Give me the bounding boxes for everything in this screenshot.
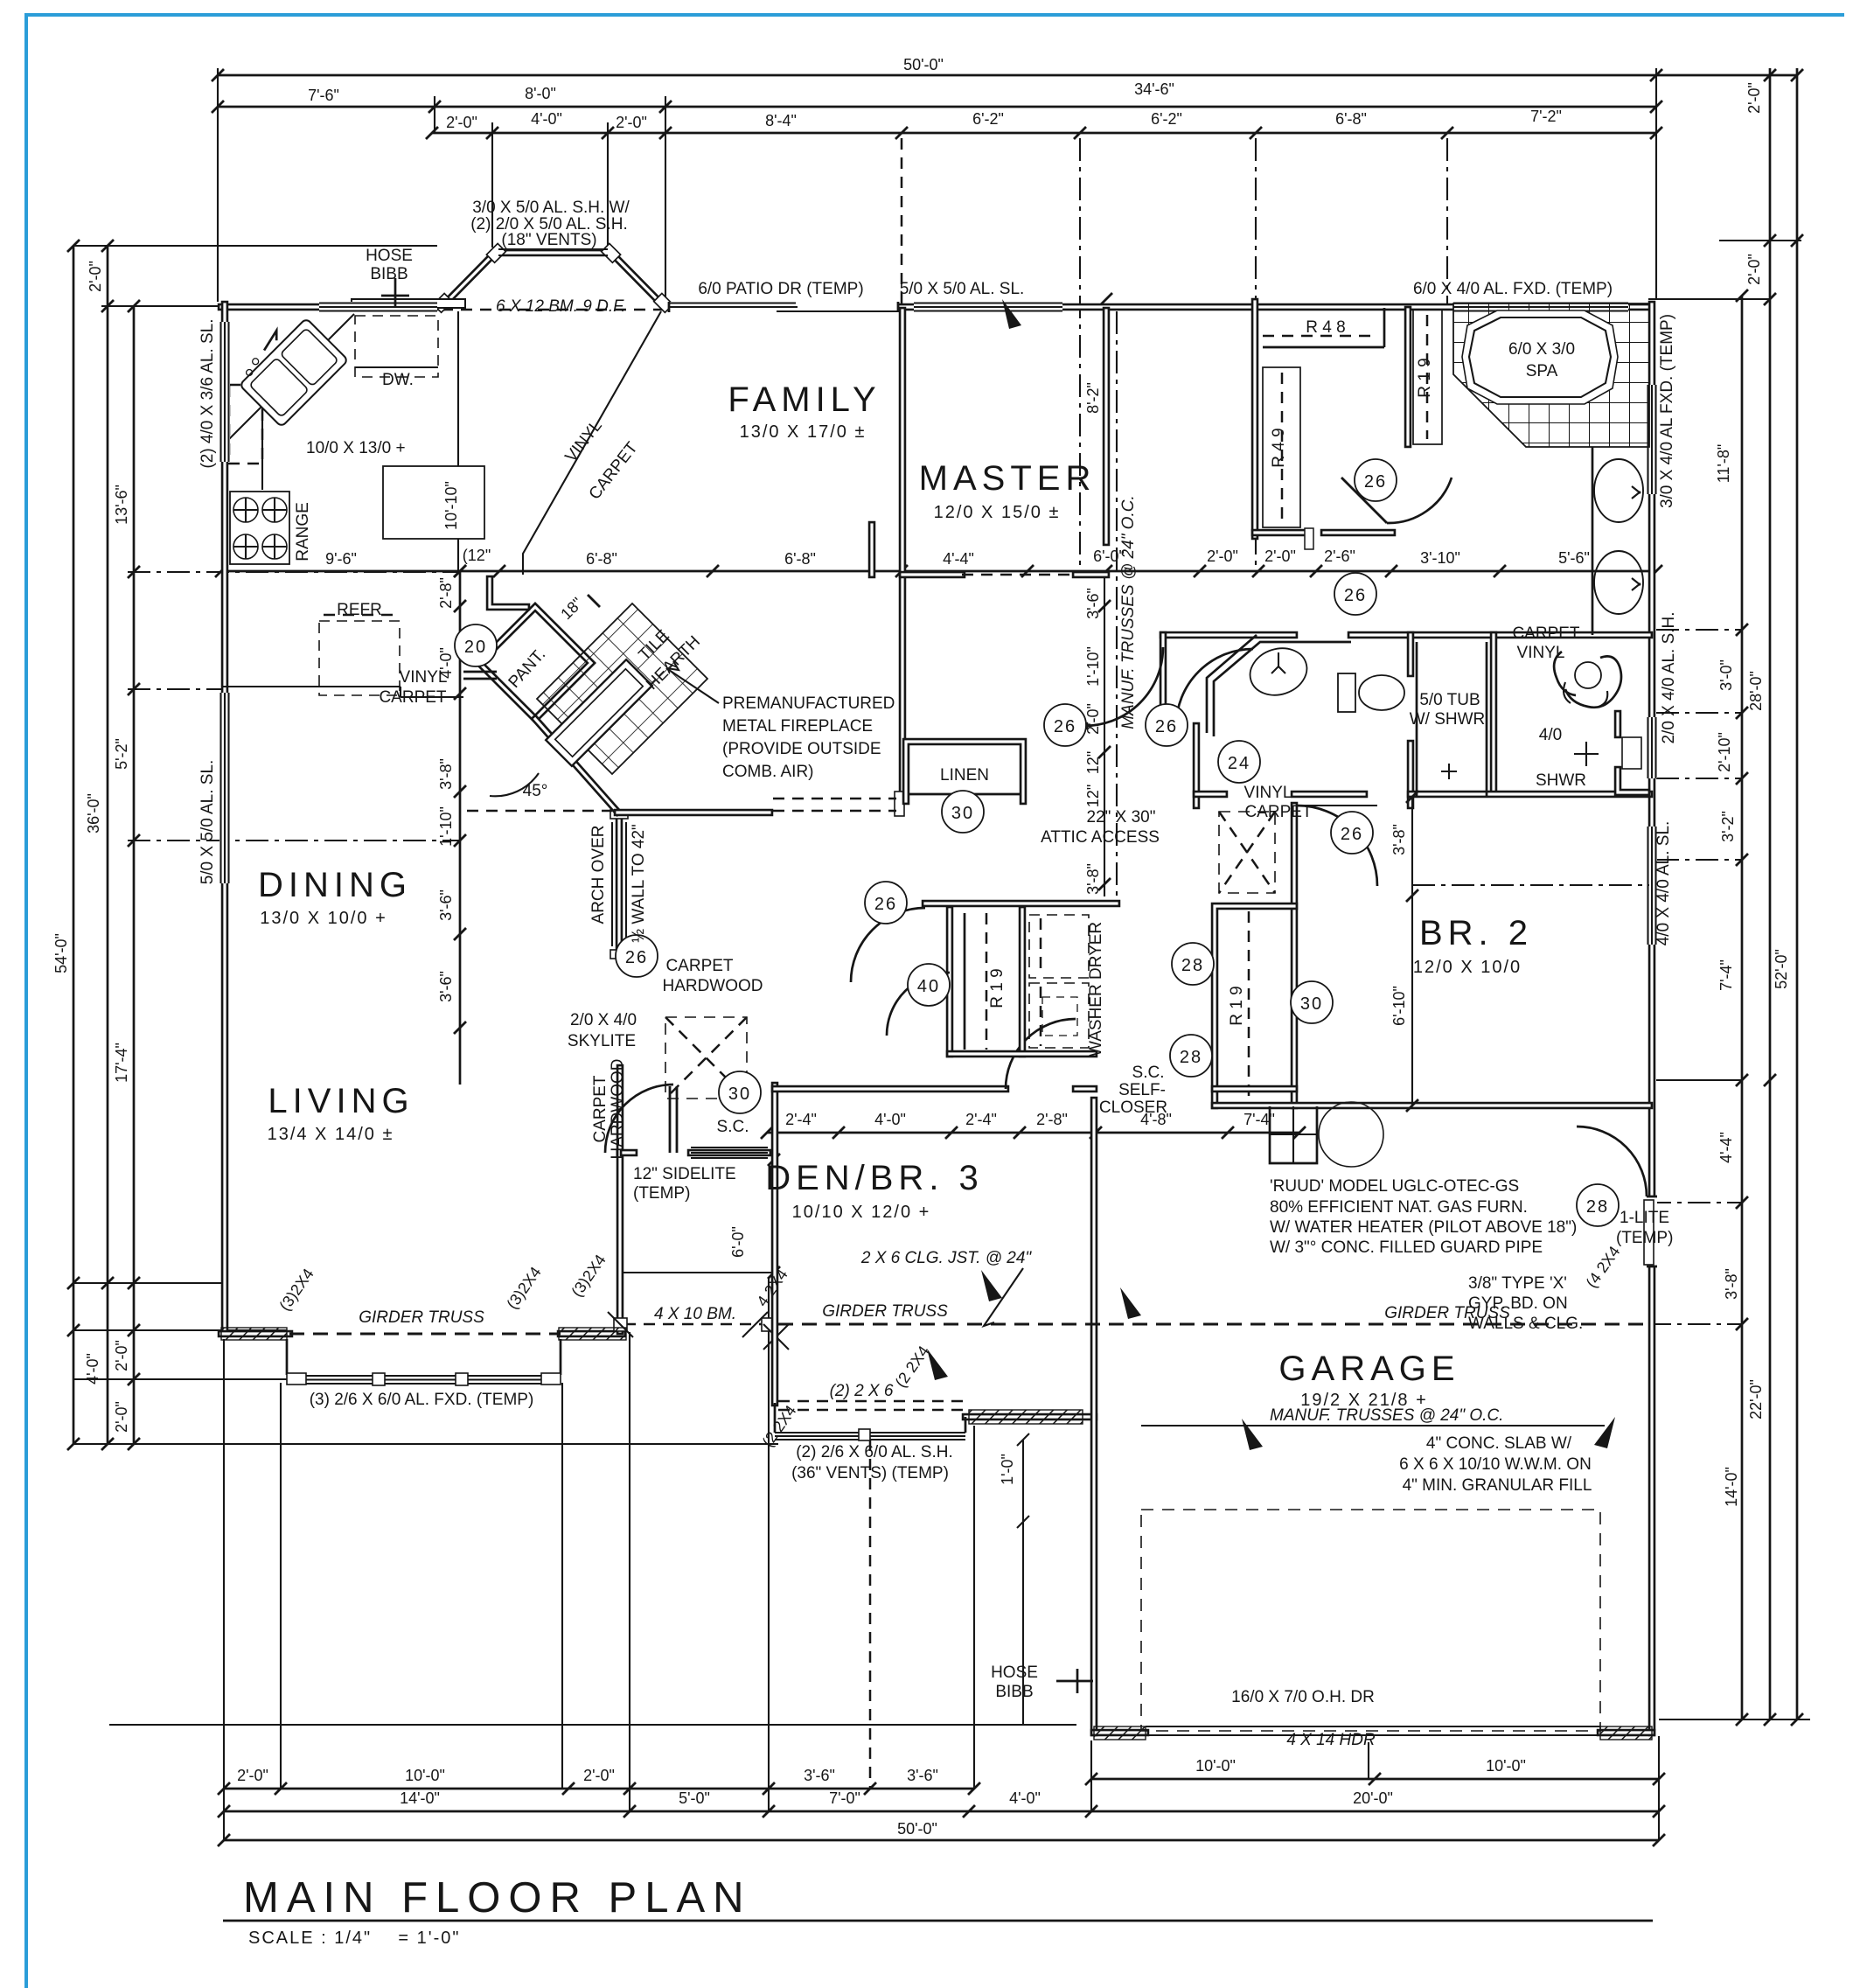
svg-text:13'-6": 13'-6" [113,485,130,525]
svg-text:1-LITE: 1-LITE [1620,1209,1669,1227]
svg-text:3/0 X 5/0 AL. S.H. W/: 3/0 X 5/0 AL. S.H. W/ [472,199,630,217]
svg-text:8'-0": 8'-0" [525,85,556,102]
svg-text:2'-0": 2'-0" [113,1401,130,1433]
svg-text:3'-6": 3'-6" [437,889,455,921]
svg-text:30: 30 [1300,994,1323,1014]
svg-text:34'-6": 34'-6" [1134,80,1174,98]
svg-text:2'-8": 2'-8" [1036,1111,1068,1128]
svg-text:28: 28 [1586,1197,1609,1217]
svg-text:1'-0": 1'-0" [999,1454,1016,1485]
svg-text:LIVING: LIVING [268,1082,414,1120]
svg-text:2'-0": 2'-0" [1745,254,1763,285]
svg-text:28: 28 [1181,956,1204,975]
svg-text:RANGE: RANGE [294,502,312,562]
svg-text:5'-6": 5'-6" [1558,549,1590,567]
svg-text:4/0: 4/0 [1539,726,1562,744]
svg-text:40: 40 [917,977,940,996]
svg-text:5/0 X 5/0 AL. SL.: 5/0 X 5/0 AL. SL. [199,760,217,885]
svg-text:2'-0": 2'-0" [1207,548,1238,565]
svg-text:(12": (12" [463,547,491,564]
svg-text:CARPET: CARPET [665,957,733,975]
svg-text:7'-0": 7'-0" [829,1789,860,1807]
svg-text:2'-8": 2'-8" [437,577,455,609]
svg-text:3'-6": 3'-6" [804,1767,835,1784]
svg-text:GYP. BD. ON: GYP. BD. ON [1468,1294,1568,1313]
svg-text:4 X 10 BM.: 4 X 10 BM. [654,1305,736,1323]
svg-text:36'-0": 36'-0" [85,793,102,834]
svg-text:COMB. AIR): COMB. AIR) [722,763,814,781]
svg-text:6/0 X 3/0: 6/0 X 3/0 [1508,340,1575,359]
svg-text:10'-0": 10'-0" [405,1767,445,1784]
svg-text:3'-10": 3'-10" [1420,549,1460,567]
svg-text:10/10 X 12/0 +: 10/10 X 12/0 + [792,1203,931,1222]
svg-text:5'-0": 5'-0" [679,1789,710,1807]
svg-text:4" CONC. SLAB W/: 4" CONC. SLAB W/ [1426,1434,1572,1453]
svg-text:SPA: SPA [1526,362,1558,380]
svg-text:14'-0": 14'-0" [1723,1467,1740,1507]
svg-text:MAIN FLOOR PLAN: MAIN FLOOR PLAN [243,1874,752,1922]
svg-text:CARPET: CARPET [379,688,446,707]
svg-text:R 1 9: R 1 9 [988,968,1007,1008]
svg-text:4'-0": 4'-0" [531,110,562,128]
svg-text:12": 12" [1084,751,1102,774]
svg-text:50'-0": 50'-0" [897,1820,937,1838]
svg-text:8'-2": 8'-2" [1084,382,1102,414]
svg-text:52'-0": 52'-0" [1773,949,1790,989]
svg-text:CLOSER: CLOSER [1099,1099,1167,1117]
svg-text:10/0 X 13/0 +: 10/0 X 13/0 + [306,439,406,457]
svg-text:6'-0": 6'-0" [729,1226,747,1258]
svg-text:(2) 4/0 X 3/6 AL. SL.: (2) 4/0 X 3/6 AL. SL. [199,318,217,468]
svg-text:S.C.: S.C. [717,1118,749,1136]
svg-text:R 1 9: R 1 9 [1228,986,1246,1025]
svg-text:2'-0": 2'-0" [1264,548,1296,565]
svg-text:26: 26 [1344,586,1367,605]
svg-text:(18" VENTS): (18" VENTS) [501,231,596,249]
svg-text:3'-6": 3'-6" [907,1767,938,1784]
svg-text:54'-0": 54'-0" [52,933,70,973]
svg-text:11'-8": 11'-8" [1715,444,1732,484]
svg-text:16/0 X 7/0 O.H. DR: 16/0 X 7/0 O.H. DR [1231,1688,1375,1706]
svg-text:4 X 14 HDR: 4 X 14 HDR [1286,1731,1376,1749]
svg-text:6'-8": 6'-8" [1335,110,1367,128]
svg-text:CARPET: CARPET [1244,803,1312,821]
svg-text:3'-8": 3'-8" [1084,863,1102,895]
svg-text:BR. 2: BR. 2 [1419,914,1533,952]
svg-text:3'-0": 3'-0" [1717,659,1735,691]
svg-text:4'-4": 4'-4" [943,550,974,568]
svg-text:22" X 30": 22" X 30" [1087,808,1156,827]
svg-text:3'-8": 3'-8" [1723,1268,1740,1300]
svg-text:VINYL: VINYL [1244,784,1292,802]
svg-text:PREMANUFACTURED: PREMANUFACTURED [722,694,895,713]
svg-text:2'-0": 2'-0" [113,1340,130,1371]
svg-text:SHWR: SHWR [1536,771,1586,790]
svg-text:3'-2": 3'-2" [1719,811,1737,842]
svg-text:2'-0": 2'-0" [616,114,647,131]
svg-text:7'-2": 7'-2" [1530,108,1562,125]
svg-text:26: 26 [1155,717,1178,736]
svg-text:HOSE: HOSE [366,247,413,265]
svg-text:LINEN: LINEN [940,766,989,785]
svg-text:10'-10": 10'-10" [442,481,460,530]
svg-text:R 4 8: R 4 8 [1306,318,1345,337]
svg-text:5'-2": 5'-2" [113,738,130,770]
svg-text:GARAGE: GARAGE [1278,1350,1459,1388]
svg-text:R 4 9: R 4 9 [1270,428,1288,467]
svg-text:4" MIN. GRANULAR FILL: 4" MIN. GRANULAR FILL [1403,1476,1592,1495]
svg-text:BIBB: BIBB [370,265,408,283]
svg-text:6'-2": 6'-2" [1151,110,1182,128]
svg-text:2'-0": 2'-0" [446,114,477,131]
svg-text:3'-8": 3'-8" [1390,824,1408,855]
svg-text:(TEMP): (TEMP) [1616,1229,1673,1247]
svg-text:6'-2": 6'-2" [972,110,1004,128]
svg-text:5/0 X 5/0 AL. SL.: 5/0 X 5/0 AL. SL. [900,280,1025,298]
svg-text:12/0 X 15/0 ±: 12/0 X 15/0 ± [934,503,1061,522]
svg-text:80% EFFICIENT NAT. GAS FURN.: 80% EFFICIENT NAT. GAS FURN. [1270,1198,1528,1217]
svg-text:SELF-: SELF- [1118,1081,1166,1099]
svg-text:MANUF. TRUSSES @ 24" O.C.: MANUF. TRUSSES @ 24" O.C. [1270,1406,1503,1425]
svg-text:6 X 12 BM. 9 D.F.: 6 X 12 BM. 9 D.F. [496,297,626,316]
svg-text:4'-0": 4'-0" [1009,1789,1041,1807]
svg-text:5/0 TUB: 5/0 TUB [1419,691,1480,709]
svg-text:10'-0": 10'-0" [1486,1757,1526,1775]
svg-text:6'-8": 6'-8" [586,550,617,568]
svg-text:12/0 X 10/0: 12/0 X 10/0 [1413,958,1522,977]
svg-text:SCALE : 1/4" = 1'-0": SCALE : 1/4" = 1'-0" [248,1929,460,1948]
svg-text:WALLS & CLG.: WALLS & CLG. [1468,1315,1583,1333]
svg-text:20: 20 [464,638,487,657]
svg-text:50'-0": 50'-0" [903,56,944,73]
svg-text:2'-4": 2'-4" [785,1111,817,1128]
svg-text:1'-10": 1'-10" [437,806,455,847]
svg-text:GIRDER TRUSS: GIRDER TRUSS [359,1308,484,1327]
svg-text:3/8" TYPE 'X': 3/8" TYPE 'X' [1468,1274,1567,1293]
svg-text:HOSE: HOSE [991,1664,1038,1682]
svg-text:METAL FIREPLACE: METAL FIREPLACE [722,717,873,736]
svg-text:SKYLITE: SKYLITE [568,1032,636,1050]
svg-text:2/0 X 4/0 AL. S.H.: 2/0 X 4/0 AL. S.H. [1660,611,1678,743]
svg-text:4/0 X 4/0 AL. SL.: 4/0 X 4/0 AL. SL. [1654,821,1673,946]
svg-text:'RUUD' MODEL UGLC-OTEC-GS: 'RUUD' MODEL UGLC-OTEC-GS [1270,1177,1519,1196]
svg-text:28: 28 [1180,1048,1202,1067]
svg-text:10'-0": 10'-0" [1195,1757,1236,1775]
svg-text:20'-0": 20'-0" [1353,1789,1393,1807]
svg-text:CARPET: CARPET [591,1075,610,1142]
svg-text:(PROVIDE OUTSIDE: (PROVIDE OUTSIDE [722,740,881,758]
svg-text:ATTIC ACCESS: ATTIC ACCESS [1041,828,1160,847]
svg-text:7'-4": 7'-4" [1717,959,1735,991]
svg-text:ARCH OVER: ARCH OVER [589,826,608,924]
svg-text:2'-0": 2'-0" [87,261,104,292]
svg-text:26: 26 [1364,472,1387,492]
svg-text:3/0 X 4/0 AL FXD. (TEMP): 3/0 X 4/0 AL FXD. (TEMP) [1658,314,1676,508]
svg-text:24: 24 [1228,754,1250,773]
svg-text:30: 30 [728,1085,751,1104]
svg-text:REFR: REFR [337,601,382,619]
svg-text:2/0 X 4/0: 2/0 X 4/0 [570,1011,637,1029]
svg-text:45°: 45° [523,782,548,800]
svg-text:30: 30 [951,804,974,823]
svg-text:W/ SHWR: W/ SHWR [1410,710,1486,729]
svg-text:VINYL: VINYL [1517,644,1565,662]
svg-text:12": 12" [1084,785,1102,807]
svg-text:26: 26 [1341,825,1363,844]
svg-text:12" SIDELITE: 12" SIDELITE [633,1165,736,1183]
svg-text:7'-6": 7'-6" [308,87,339,104]
svg-text:6/0 X 4/0 AL. FXD. (TEMP): 6/0 X 4/0 AL. FXD. (TEMP) [1413,280,1613,298]
svg-text:(3) 2/6 X 6/0 AL. FXD. (TEMP): (3) 2/6 X 6/0 AL. FXD. (TEMP) [310,1391,534,1409]
svg-text:6'-8": 6'-8" [784,550,816,568]
svg-text:R 1 9: R 1 9 [1416,358,1434,397]
svg-text:VINYL: VINYL [400,668,448,687]
svg-text:6/0 PATIO DR (TEMP): 6/0 PATIO DR (TEMP) [698,280,863,298]
svg-text:W/ 3"° CONC. FILLED GUARD PIPE: W/ 3"° CONC. FILLED GUARD PIPE [1270,1238,1543,1257]
svg-text:2'-0": 2'-0" [1745,82,1763,114]
svg-text:4'-4": 4'-4" [1717,1132,1735,1163]
svg-text:(2) 2 X 6: (2) 2 X 6 [830,1382,894,1400]
svg-text:DINING: DINING [258,866,412,904]
svg-text:2 X 6 CLG. JST. @ 24": 2 X 6 CLG. JST. @ 24" [860,1249,1033,1267]
svg-text:22'-0": 22'-0" [1747,1379,1765,1420]
svg-text:2'-0": 2'-0" [237,1767,268,1784]
svg-text:W/ WATER HEATER (PILOT ABOVE 1: W/ WATER HEATER (PILOT ABOVE 18") [1270,1218,1577,1237]
svg-text:(36" VENTS) (TEMP): (36" VENTS) (TEMP) [791,1464,949,1482]
svg-text:3'-6": 3'-6" [1084,588,1102,619]
svg-text:DEN/BR. 3: DEN/BR. 3 [765,1159,984,1197]
svg-text:½ WALL TO 42": ½ WALL TO 42" [630,824,648,943]
svg-text:4'-0": 4'-0" [874,1111,906,1128]
svg-text:2'-10": 2'-10" [1716,732,1733,772]
svg-text:BIBB: BIBB [995,1683,1033,1701]
svg-text:26: 26 [1054,717,1076,736]
svg-text:13/4 X 14/0 ±: 13/4 X 14/0 ± [268,1125,394,1144]
svg-text:9'-6": 9'-6" [325,550,357,568]
svg-text:GIRDER TRUSS: GIRDER TRUSS [822,1302,948,1321]
svg-text:28'-0": 28'-0" [1747,671,1765,711]
svg-text:(2) 2/6 X 6/0 AL. S.H.: (2) 2/6 X 6/0 AL. S.H. [796,1443,953,1461]
svg-text:26: 26 [625,948,648,967]
svg-text:13/0 X 10/0 +: 13/0 X 10/0 + [260,909,387,928]
svg-text:DW.: DW. [382,371,414,389]
svg-text:S.C.: S.C. [1132,1064,1165,1082]
svg-text:2'-0": 2'-0" [1084,703,1102,735]
svg-text:2'-6": 2'-6" [1324,548,1355,565]
svg-text:HARDWOOD: HARDWOOD [609,1058,627,1159]
svg-text:MASTER: MASTER [919,459,1097,498]
svg-text:8'-4": 8'-4" [765,112,797,129]
svg-text:6 X 6 X 10/10 W.W.M. ON: 6 X 6 X 10/10 W.W.M. ON [1399,1455,1592,1474]
svg-text:WASHER DRYER: WASHER DRYER [1087,922,1105,1057]
svg-text:3'-6": 3'-6" [437,971,455,1002]
svg-text:1'-10": 1'-10" [1084,646,1102,687]
svg-text:3'-8": 3'-8" [437,758,455,790]
svg-text:6'-10": 6'-10" [1390,986,1408,1026]
svg-text:CARPET: CARPET [1512,624,1579,643]
svg-text:2'-0": 2'-0" [583,1767,615,1784]
svg-text:MANUF. TRUSSES @ 24" O.C.: MANUF. TRUSSES @ 24" O.C. [1119,495,1138,729]
svg-text:14'-0": 14'-0" [400,1789,440,1807]
svg-text:2'-4": 2'-4" [965,1111,997,1128]
svg-text:17'-4": 17'-4" [113,1043,130,1083]
svg-text:(TEMP): (TEMP) [633,1184,690,1203]
svg-text:26: 26 [874,895,897,914]
svg-text:HARDWOOD: HARDWOOD [662,977,763,995]
svg-text:FAMILY: FAMILY [728,380,881,419]
svg-text:13/0 X 17/0 ±: 13/0 X 17/0 ± [740,422,867,442]
